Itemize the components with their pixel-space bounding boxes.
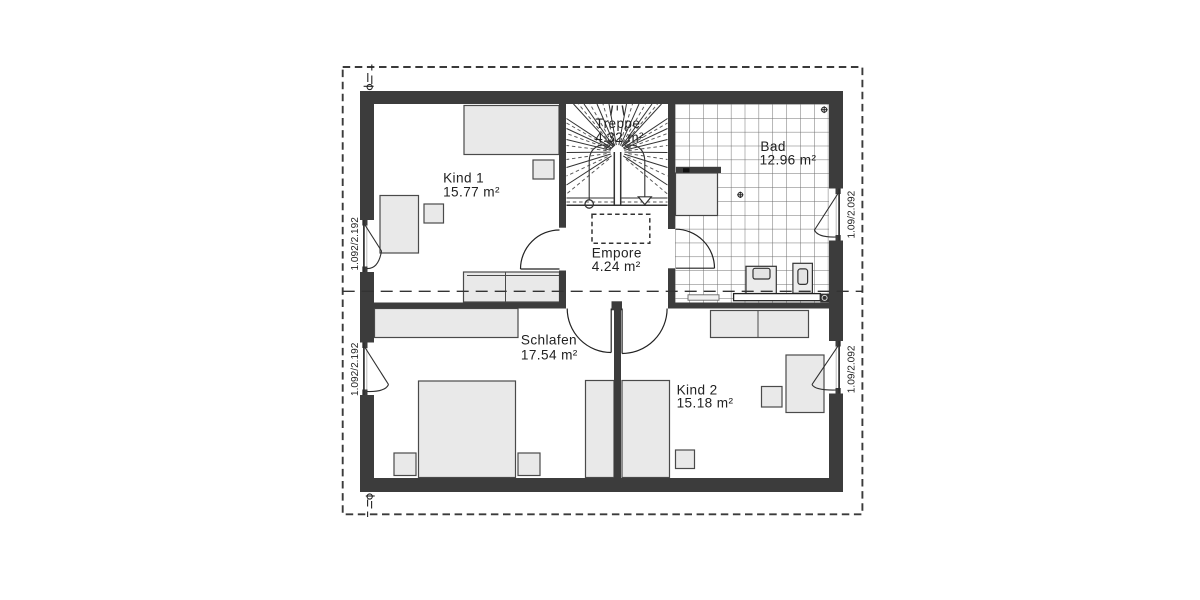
svg-text:1.092/2.192: 1.092/2.192 [350, 217, 361, 271]
svg-text:17.54 m²: 17.54 m² [521, 347, 578, 362]
svg-text:1.09/2.092: 1.09/2.092 [847, 190, 858, 238]
svg-text:Treppe: Treppe [595, 116, 640, 131]
svg-text:15.18 m²: 15.18 m² [677, 396, 734, 411]
svg-text:1.09/2.092: 1.09/2.092 [847, 345, 858, 393]
svg-text:Schlafen: Schlafen [521, 332, 577, 347]
svg-text:Kind 1: Kind 1 [443, 171, 484, 186]
svg-text:1.092/2.192: 1.092/2.192 [350, 342, 361, 396]
svg-text:4.32 m²: 4.32 m² [595, 130, 644, 145]
svg-text:15.77 m²: 15.77 m² [443, 185, 500, 200]
svg-text:4.24 m²: 4.24 m² [592, 259, 641, 274]
svg-text:12.96 m²: 12.96 m² [760, 153, 817, 168]
